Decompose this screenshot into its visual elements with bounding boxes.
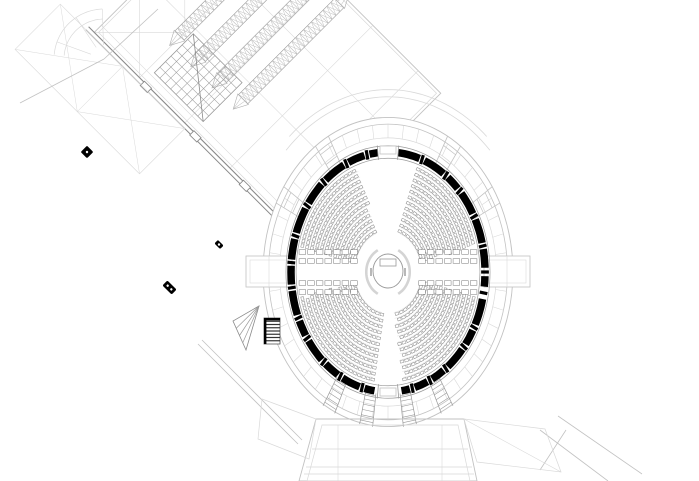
wall-mullion-tick [287,262,295,263]
truss-rung [203,46,212,55]
seat [349,285,352,289]
desk-seat [308,250,315,255]
desk-seat [342,259,349,264]
desk-seat [342,250,349,255]
desk-seat [334,290,341,295]
wall-mullion-tick [479,245,487,247]
truss-rung [259,32,268,41]
seat [374,354,378,357]
truss-rung [214,34,223,43]
truss-rung [182,24,191,33]
truss-rung [323,10,332,19]
floor-plan-canvas [0,0,699,481]
seat [321,245,324,249]
truss-diagonal [239,92,251,104]
site-wall-line [558,416,642,474]
seat [373,360,377,363]
seat [367,371,371,374]
wall-jog [190,131,201,142]
desk-seat [299,259,306,264]
truss-rung [234,14,243,23]
truss-rung [296,37,305,46]
seat [372,372,376,375]
desk-seat [453,281,460,286]
roof-fan-radial [76,18,96,48]
desk-seat [462,290,469,295]
seat [467,295,470,299]
seat [375,348,379,351]
truss-rung [284,49,293,58]
stage-inner [307,425,470,481]
roof-fan-arc [64,19,102,56]
desk-seat [453,250,460,255]
desk-seat [334,281,341,286]
truss-diagonal [175,28,187,40]
desk-seat [316,250,323,255]
truss-rung [193,13,202,22]
seat [395,324,399,327]
truss-rung [275,16,284,25]
seat [397,330,401,333]
truss-rung [178,28,187,37]
truss-rung [286,4,295,13]
seat [302,301,305,305]
seat [457,242,460,246]
desk-seat [462,250,469,255]
truss-rung [242,7,251,16]
wall-segment [402,389,410,391]
wall-segment [370,153,378,155]
seat [402,378,406,381]
seat [378,325,382,328]
wall-segment [365,388,375,390]
seat [467,242,470,246]
seat [471,301,474,305]
desk-seat [308,259,315,264]
truss-rung [315,18,324,27]
furniture-mark [162,280,176,294]
seat [452,295,455,299]
seat [398,342,402,345]
seat [305,245,308,249]
furniture-mark [81,146,94,159]
truss-rung [246,3,255,12]
truss-rung [282,8,291,17]
floor-grid-line [192,0,396,138]
desk-seat [445,259,452,264]
truss-rung [304,30,313,39]
desk-seat [351,259,358,264]
skylight-diagonal [154,34,242,122]
truss-end-triangle [164,30,185,51]
truss-rung [263,28,272,37]
wall-jog [140,81,151,92]
desk-seat [427,259,434,264]
truss-rung [241,92,250,101]
annex-brace [77,66,184,173]
seat [303,306,306,310]
desk-seat [351,281,358,286]
wall-segment [484,276,485,286]
seat [402,365,406,368]
seat [400,348,404,351]
seat [452,244,455,248]
site-wall-line [198,344,298,444]
truss-rung [257,76,266,85]
truss-rung [245,88,254,97]
desk-seat [462,259,469,264]
truss-rung [261,72,270,81]
site-wall-line [104,9,158,59]
truss-rung [222,26,231,35]
seat [303,234,306,238]
desk-seat [419,259,426,264]
truss-diagonal [217,71,229,83]
truss-rung [238,10,247,19]
seat [466,238,469,242]
seat [316,243,319,247]
truss-rung [226,22,235,31]
seat [301,297,304,301]
truss-rung [311,22,320,31]
floor-plan-page [0,0,699,481]
seat [470,305,473,309]
desk-seat [419,281,426,286]
seat [429,255,432,259]
seat [376,342,380,345]
desk-seat [299,290,306,295]
truss-rung [243,47,252,56]
desk-seat [470,250,477,255]
truss-rung [249,84,258,93]
seat [316,297,319,301]
seat [310,295,313,299]
desk-seat [342,290,349,295]
seat [461,240,464,244]
desk-seat [308,290,315,295]
seat [457,297,460,301]
truss-rung [236,55,245,64]
truss-rung [197,9,206,18]
seat [311,300,314,304]
skylight-line [165,62,214,111]
seat [317,239,320,243]
seat [471,240,474,244]
truss-rung [269,65,278,74]
wall-segment [483,249,485,268]
truss-rung [230,18,239,27]
seat [368,365,372,368]
skylight-line [160,39,199,78]
skylight-line [171,50,210,89]
seat [380,313,384,316]
desk-seat [453,259,460,264]
seat [462,298,465,302]
desk-seat [427,290,434,295]
truss-rung [201,5,210,14]
truss-rung [267,24,276,33]
seat [366,377,370,380]
truss-rung [185,20,194,29]
desk-seat [419,290,426,295]
seat [326,296,329,300]
truss-rung [249,0,258,8]
site-wall-line [540,430,608,481]
wall-mullion-tick [288,287,296,288]
seat [456,301,459,305]
truss-rung [205,1,214,10]
seat [379,319,383,322]
truss-rung [307,26,316,35]
desk-seat [427,281,434,286]
door-landing [380,146,396,154]
truss-rung [290,1,299,10]
desk-seat [334,259,341,264]
seat [306,240,309,244]
seat [307,303,310,307]
truss-rung [278,12,287,21]
seat [400,360,404,363]
seat [308,236,311,240]
seat [470,236,473,240]
seat [371,378,375,381]
furniture-mark [214,240,223,249]
truss-rung [288,45,297,54]
desk-seat [299,250,306,255]
seat [377,331,381,334]
truss-rung [247,43,256,52]
furniture-body [162,280,176,294]
truss-rung [228,63,237,72]
seat [405,371,409,374]
truss-rung [300,33,309,42]
desk-seat [316,290,323,295]
desk-seat [342,281,349,286]
seat [377,337,381,340]
truss-rung [199,49,208,58]
desk-seat [325,250,332,255]
truss-rung [240,51,249,60]
desk-seat [436,250,443,255]
desk-seat [470,290,477,295]
roof-fan-radial [57,42,91,54]
wall-jog [239,180,250,191]
seat [306,298,309,302]
wall-segment [291,266,292,285]
skylight-line [176,56,215,95]
wall-mullion-tick [411,384,413,393]
desk-seat [462,281,469,286]
skylight-line [198,77,237,116]
desk-seat [427,250,434,255]
annex-line [77,66,122,111]
truss-rung [319,14,328,23]
stage-flap-diag [464,419,561,472]
truss-end-line [339,0,351,5]
roof-brace [94,0,185,78]
wall-mullion-tick [361,383,363,392]
truss-rung [276,57,285,66]
desk-seat [299,281,306,286]
furniture-marks [81,146,224,295]
door-landing [380,388,396,396]
wall-segment [292,239,295,260]
truss-rung [207,42,216,51]
desk-seat [470,281,477,286]
desk-seat [445,281,452,286]
seat [321,299,324,303]
truss-rung [272,61,281,70]
truss-rung [327,6,336,15]
truss-rung [280,53,289,62]
wall-mullion-tick [480,292,488,294]
seat [472,296,475,300]
desk-seat [445,290,452,295]
desk-seat [351,290,358,295]
desk-seat [334,250,341,255]
truss-rung [265,68,274,77]
wall-mullion-tick [366,150,368,159]
desk-seat [453,290,460,295]
desk-seat [419,250,426,255]
desk-seat [351,250,358,255]
seat [311,242,314,246]
seat [466,299,469,303]
truss-end-triangle [228,94,249,115]
desk-seat [470,259,477,264]
desk-seat [436,290,443,295]
seat [460,303,463,307]
desk-seat [325,290,332,295]
seat [302,239,305,243]
desk-seat [436,281,443,286]
desk-seat [325,259,332,264]
stage-outline [299,419,477,481]
desk-seat [316,281,323,286]
desk-seat [436,259,443,264]
seat [462,245,465,249]
desk-seat [316,259,323,264]
auditorium [246,90,530,427]
desk-seat [445,250,452,255]
seat [465,304,468,308]
seat [372,366,376,369]
truss-rung [255,36,264,45]
truss-rung [251,39,260,48]
desk-seat [308,281,315,286]
skylight-line [177,51,226,100]
truss-rung [218,30,227,39]
truss-rung [331,2,340,11]
seat [301,244,304,248]
seat [312,237,315,241]
desk-seat [325,281,332,286]
